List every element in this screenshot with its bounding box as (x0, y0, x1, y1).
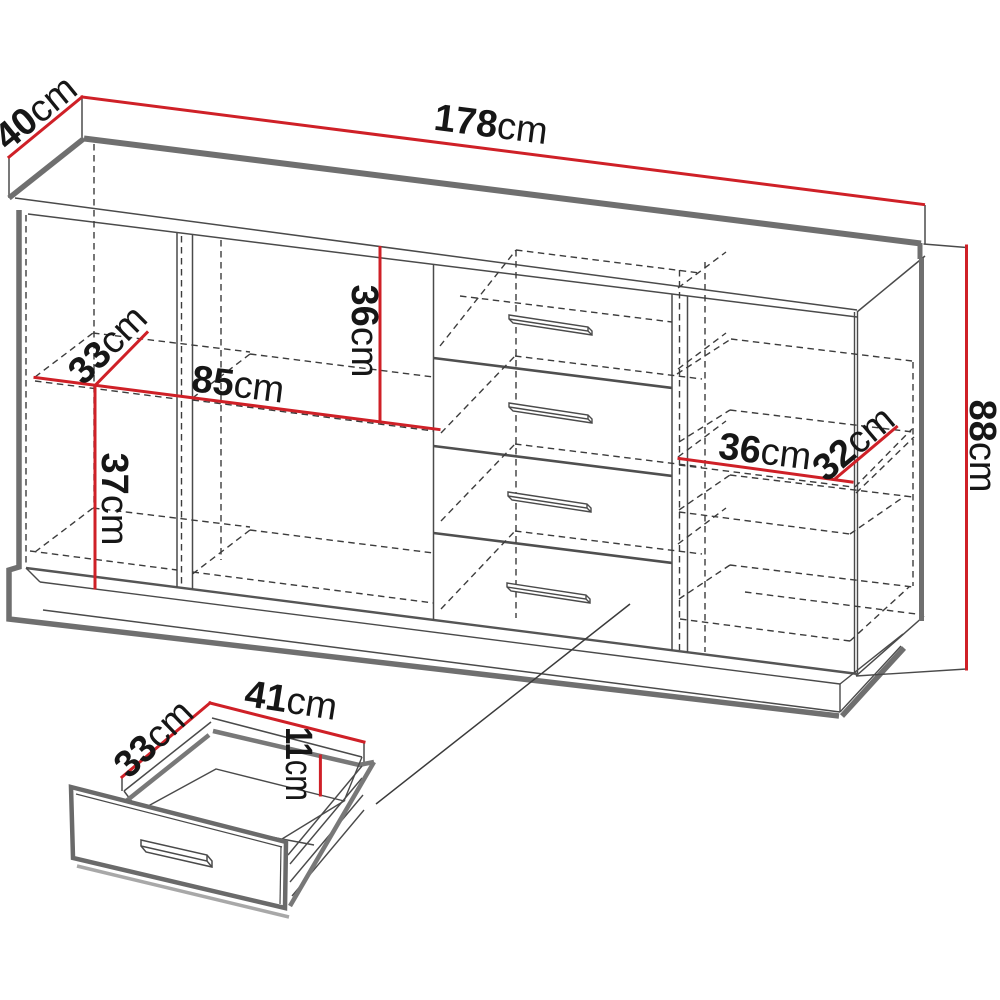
svg-text:88cm: 88cm (961, 400, 1000, 493)
svg-text:11cm: 11cm (277, 727, 319, 801)
svg-text:36cm: 36cm (343, 285, 385, 378)
svg-text:37cm: 37cm (93, 453, 135, 546)
